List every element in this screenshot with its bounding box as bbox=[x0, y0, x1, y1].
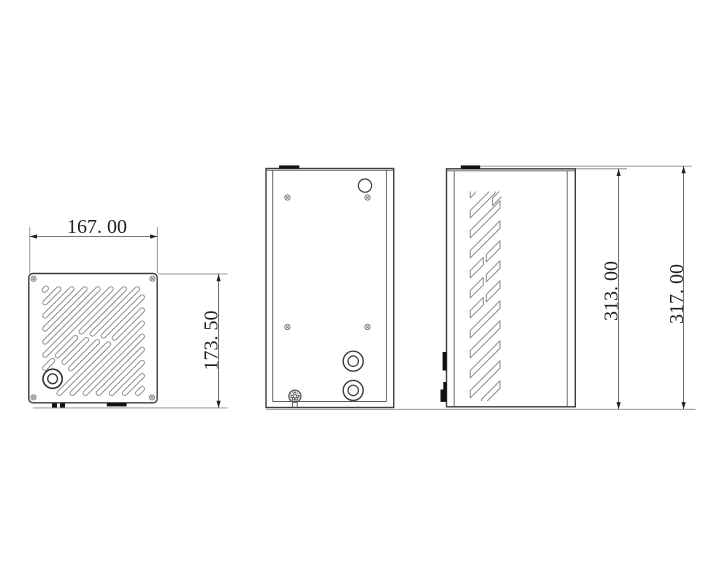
svg-text:173. 50: 173. 50 bbox=[201, 311, 223, 371]
svg-text:317. 00: 317. 00 bbox=[666, 264, 688, 324]
svg-text:313. 00: 313. 00 bbox=[601, 261, 623, 321]
svg-text:167. 00: 167. 00 bbox=[67, 216, 127, 238]
